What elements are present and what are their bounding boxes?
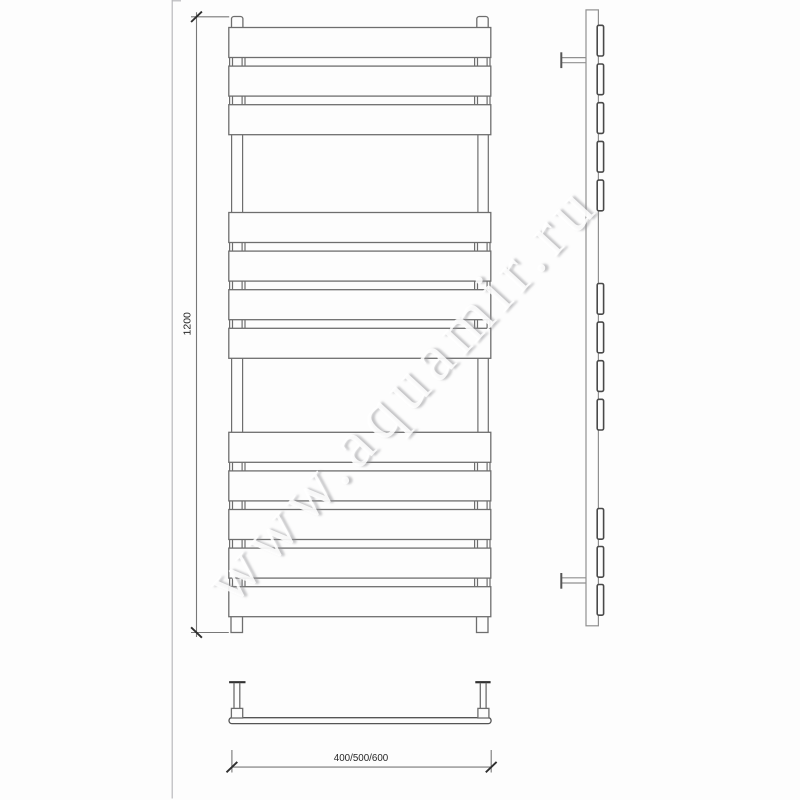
- svg-text:1200: 1200: [182, 312, 194, 336]
- svg-text:400/500/600: 400/500/600: [334, 753, 389, 764]
